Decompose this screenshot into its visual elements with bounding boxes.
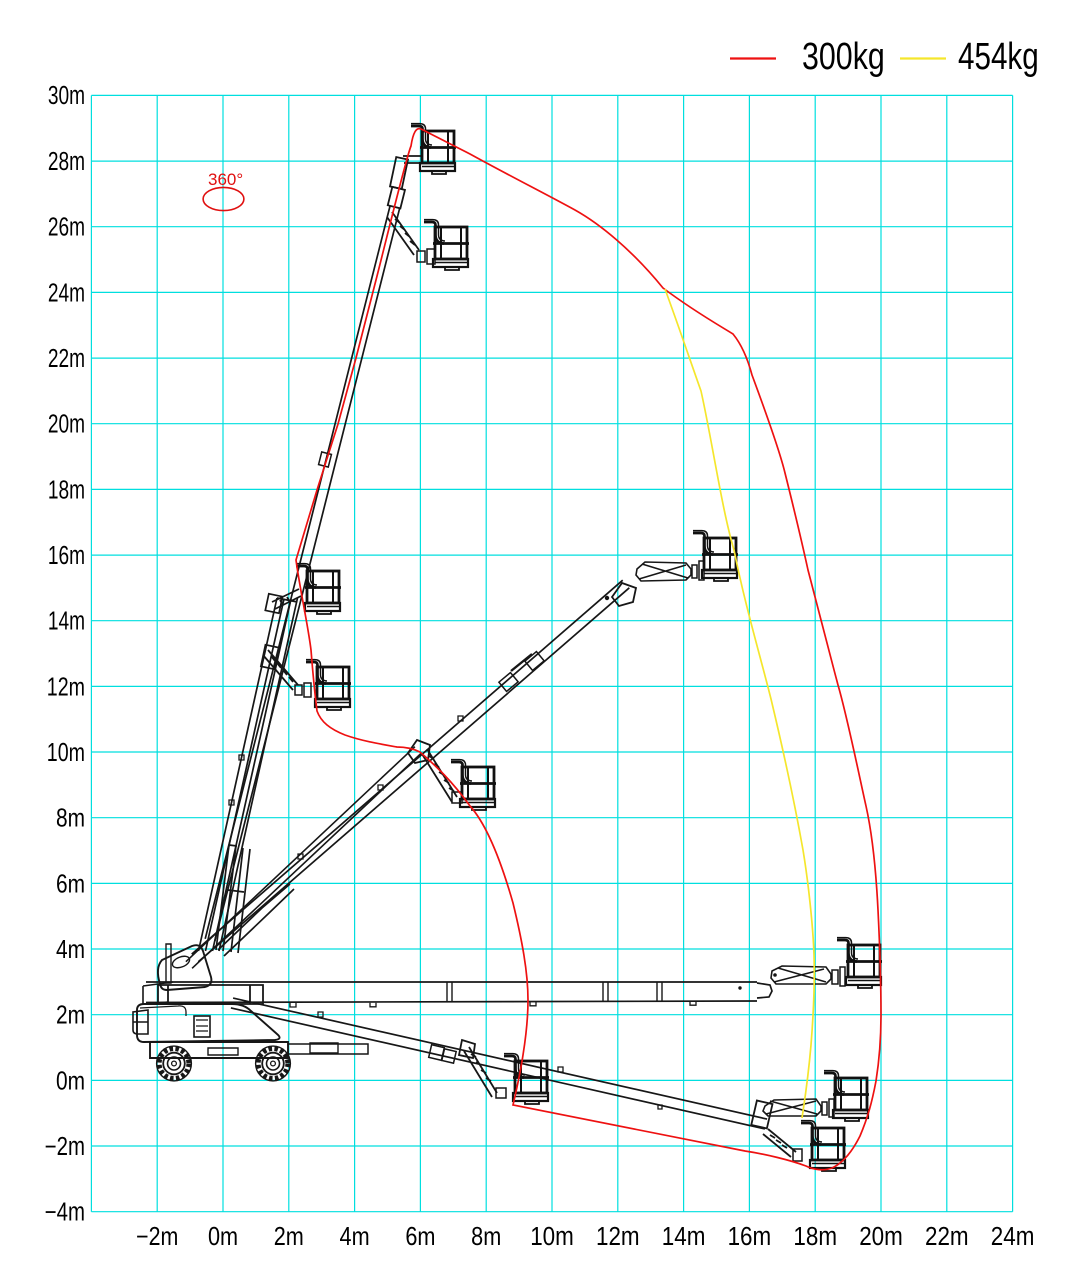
svg-text:14m: 14m [662,1223,706,1252]
svg-text:12m: 12m [596,1223,640,1252]
svg-text:0m: 0m [56,1066,85,1094]
svg-text:2m: 2m [56,1001,85,1029]
svg-text:360°: 360° [208,170,243,189]
svg-text:24m: 24m [991,1223,1035,1252]
svg-text:14m: 14m [48,607,85,635]
svg-text:2m: 2m [274,1223,304,1251]
svg-text:300kg: 300kg [802,36,885,78]
svg-text:4m: 4m [56,935,85,963]
svg-text:16m: 16m [728,1223,772,1252]
svg-text:4m: 4m [340,1223,370,1251]
svg-text:22m: 22m [925,1223,969,1252]
svg-text:8m: 8m [471,1223,501,1251]
svg-text:−2m: −2m [136,1222,178,1250]
svg-text:16m: 16m [48,541,85,569]
svg-text:12m: 12m [47,672,85,701]
svg-text:28m: 28m [48,147,85,175]
svg-text:0m: 0m [208,1223,238,1251]
svg-text:24m: 24m [48,279,85,307]
svg-text:26m: 26m [48,213,85,241]
svg-text:18m: 18m [48,476,85,504]
svg-text:−2m: −2m [45,1132,85,1161]
svg-text:10m: 10m [530,1223,574,1252]
svg-text:10m: 10m [47,737,85,766]
svg-text:20m: 20m [859,1223,903,1252]
svg-text:30m: 30m [48,81,85,109]
svg-text:8m: 8m [56,804,85,832]
svg-text:6m: 6m [56,869,85,897]
svg-text:454kg: 454kg [958,36,1039,78]
svg-text:18m: 18m [793,1223,837,1252]
svg-text:22m: 22m [48,344,85,372]
svg-text:6m: 6m [405,1223,435,1251]
svg-text:20m: 20m [48,410,85,438]
svg-text:−4m: −4m [45,1198,85,1227]
